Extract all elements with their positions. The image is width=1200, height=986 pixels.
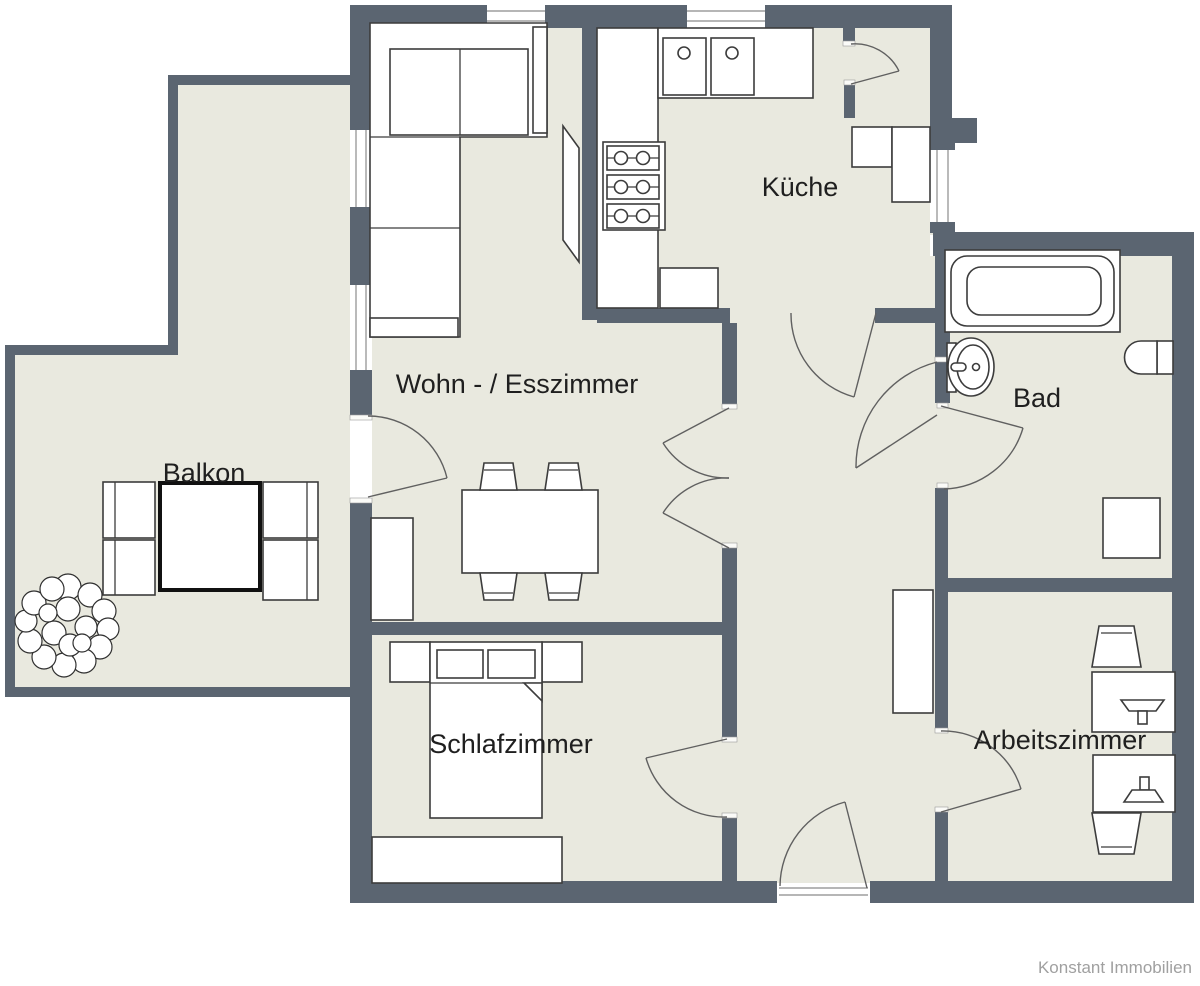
- pillow: [488, 650, 535, 678]
- bath-cabinet: [1103, 498, 1160, 558]
- wall-bedroom-right-lower: [722, 818, 737, 881]
- room-label-balkon: Balkon: [163, 458, 246, 488]
- sofa-seat: [390, 49, 528, 135]
- window-icon: [350, 130, 372, 207]
- wall-niche-stub-a: [843, 28, 855, 41]
- railing-left-upper: [168, 75, 178, 355]
- tv-icon: [563, 126, 579, 262]
- wall-kitchen-bottom-left: [597, 308, 730, 323]
- wall-left-c: [350, 370, 372, 420]
- hall-closet: [893, 590, 933, 713]
- railing-left-outer: [5, 345, 15, 697]
- dining-table-icon: [462, 490, 598, 573]
- room-label-arbeitszimmer: Arbeitszimmer: [974, 725, 1147, 755]
- desk-chair-icon: [1092, 813, 1141, 854]
- monitor-icon: [1121, 700, 1164, 711]
- desk-chair-icon: [1092, 626, 1141, 667]
- wall-hall-office-upper: [935, 592, 948, 728]
- nightstand-icon: [542, 642, 582, 682]
- entrance-threshold: [779, 883, 868, 898]
- pillow: [437, 650, 483, 678]
- sideboard-icon: [371, 518, 413, 620]
- nightstand-icon: [390, 642, 430, 682]
- wall-bad-bottom: [935, 578, 1172, 592]
- floor-plan-page: Balkon Wohn - / Esszimmer Küche Bad Schl…: [0, 0, 1200, 986]
- wall-left-d: [350, 498, 372, 881]
- hall-furniture: [893, 590, 933, 713]
- wall-bad-left-lower: [935, 488, 948, 580]
- window-icon: [687, 5, 765, 28]
- chair-icon: [480, 463, 517, 490]
- room-label-schlafzimmer: Schlafzimmer: [429, 729, 593, 759]
- wall-kitchen-right: [930, 5, 952, 125]
- room-label-wohn-esszimmer: Wohn - / Esszimmer: [396, 369, 639, 399]
- wall-kitchen-step: [930, 118, 977, 143]
- railing-step: [5, 345, 178, 355]
- wall-kitchen-bottom-right: [875, 308, 935, 323]
- monitor-icon: [1124, 790, 1163, 802]
- wardrobe-icon: [372, 837, 562, 883]
- room-label-kueche: Küche: [762, 172, 839, 202]
- sofa-armrest-bottom: [370, 318, 458, 337]
- wall-bottom-right: [870, 881, 1194, 903]
- floor-plan: Balkon Wohn - / Esszimmer Küche Bad Schl…: [0, 0, 1200, 986]
- kitchen-counter-icon: [892, 127, 930, 202]
- bathtub-icon: [945, 250, 1120, 332]
- window-icon: [350, 285, 372, 370]
- balcony-table-icon: [160, 483, 260, 590]
- sofa-armrest: [533, 27, 547, 133]
- wall-living-hall-lower: [722, 548, 737, 737]
- chair-icon: [480, 573, 517, 600]
- chair-icon: [263, 540, 318, 600]
- chair-icon: [103, 540, 155, 595]
- chair-icon: [545, 463, 582, 490]
- wall-bedroom-top: [350, 622, 737, 635]
- chair-icon: [545, 573, 582, 600]
- wall-hall-office-lower: [935, 812, 948, 881]
- wall-left-b: [350, 207, 372, 285]
- kitchen-counter-icon: [660, 268, 718, 308]
- wall-kitchen-living: [582, 28, 597, 320]
- wall-living-hall-upper: [722, 323, 737, 404]
- desk-icon: [1093, 755, 1175, 812]
- wall-bottom-left: [350, 881, 777, 903]
- washbasin-icon: [947, 338, 994, 396]
- stove-icon: [603, 142, 665, 230]
- room-label-bad: Bad: [1013, 383, 1061, 413]
- chair-icon: [103, 482, 155, 538]
- railing-bottom: [5, 687, 372, 697]
- wall-niche-stub-b: [844, 85, 855, 118]
- chair-icon: [263, 482, 318, 538]
- watermark: Konstant Immobilien: [1038, 958, 1192, 977]
- desk-icon: [1092, 672, 1175, 732]
- kitchen-counter-icon: [852, 127, 892, 167]
- window-icon: [930, 150, 955, 222]
- wall-left-a: [350, 5, 372, 130]
- toilet-icon: [1125, 341, 1173, 374]
- railing-top: [168, 75, 352, 85]
